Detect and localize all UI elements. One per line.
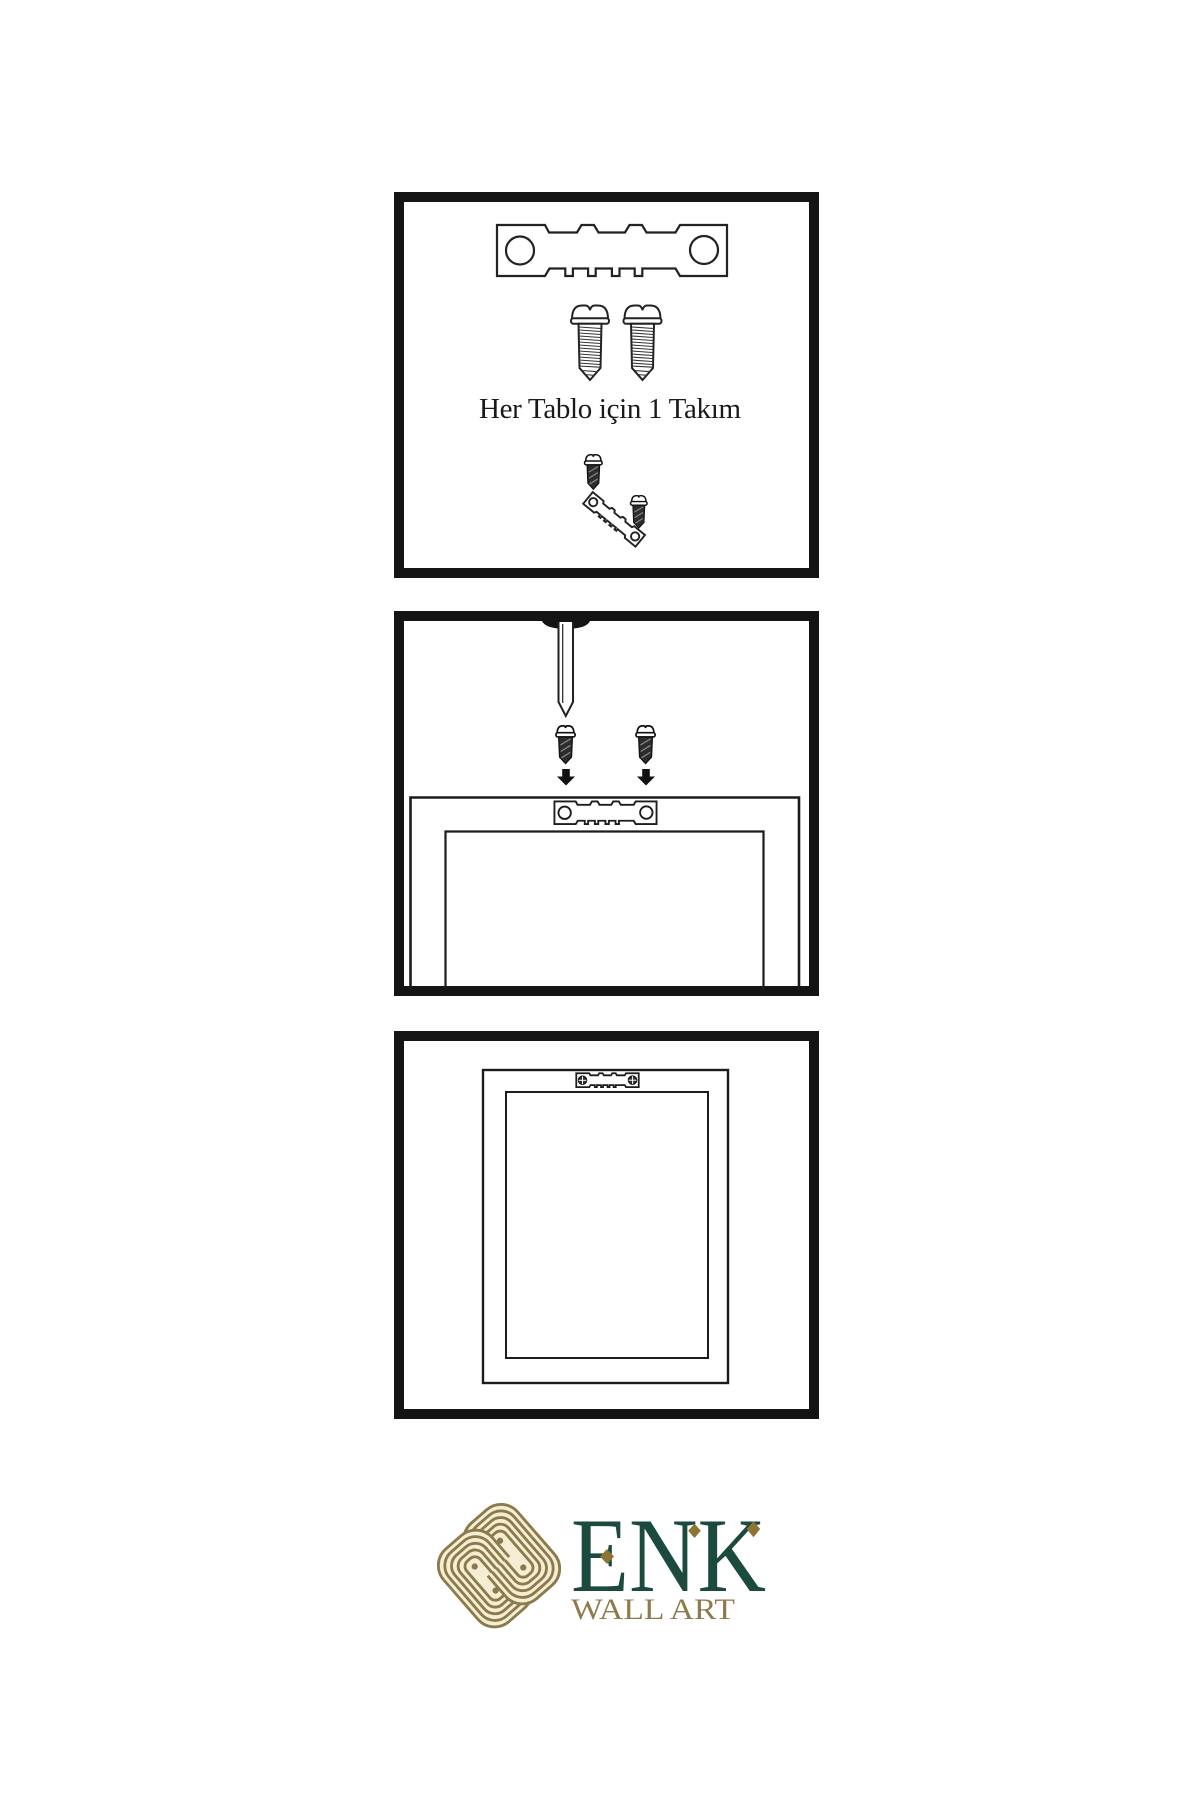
svg-text:Her Tablo için 1 Takım: Her Tablo için 1 Takım [479,393,741,425]
svg-text:WALL ART: WALL ART [571,1593,735,1626]
